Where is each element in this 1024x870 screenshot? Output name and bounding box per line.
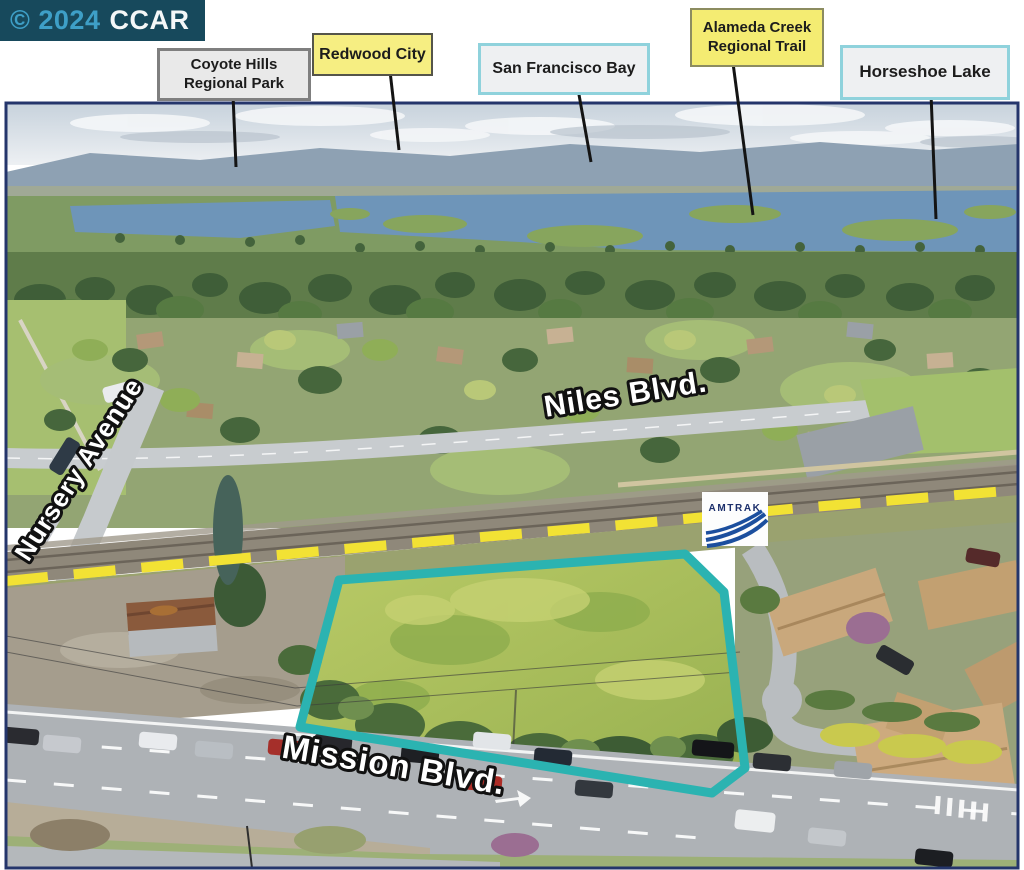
amtrak-wordmark: AMTRAK	[709, 503, 762, 514]
callout-label: Redwood City	[319, 45, 426, 65]
callout-san-francisco-bay: San Francisco Bay	[478, 43, 650, 95]
callout-horseshoe-lake: Horseshoe Lake	[840, 45, 1010, 100]
purple-tree	[846, 612, 890, 644]
amtrak-logo: AMTRAK	[702, 492, 768, 546]
old-building	[126, 597, 218, 657]
ccar-watermark: © 2024 CCAR	[0, 0, 205, 41]
watermark-brand: CCAR	[109, 5, 189, 36]
callout-alameda-creek-regional-trail: Alameda Creek Regional Trail	[690, 8, 824, 67]
callout-label: San Francisco Bay	[492, 59, 635, 79]
aerial-photo: AMTRAK Nursery Avenue Niles Blvd. Missio…	[0, 0, 1024, 870]
bay-water	[6, 190, 1018, 258]
callout-label: Alameda Creek Regional Trail	[703, 19, 811, 56]
watermark-copyright: © 2024	[10, 5, 100, 36]
purple-tree-bottom	[491, 833, 539, 857]
callout-redwood-city: Redwood City	[312, 33, 433, 76]
tree-line	[6, 252, 1018, 327]
tall-conifer	[213, 475, 243, 585]
callout-coyote-hills-regional-park: Coyote Hills Regional Park	[157, 48, 311, 101]
listing-photo-page: AMTRAK Nursery Avenue Niles Blvd. Missio…	[0, 0, 1024, 870]
callout-label: Horseshoe Lake	[859, 62, 990, 83]
callout-label: Coyote Hills Regional Park	[184, 56, 284, 93]
